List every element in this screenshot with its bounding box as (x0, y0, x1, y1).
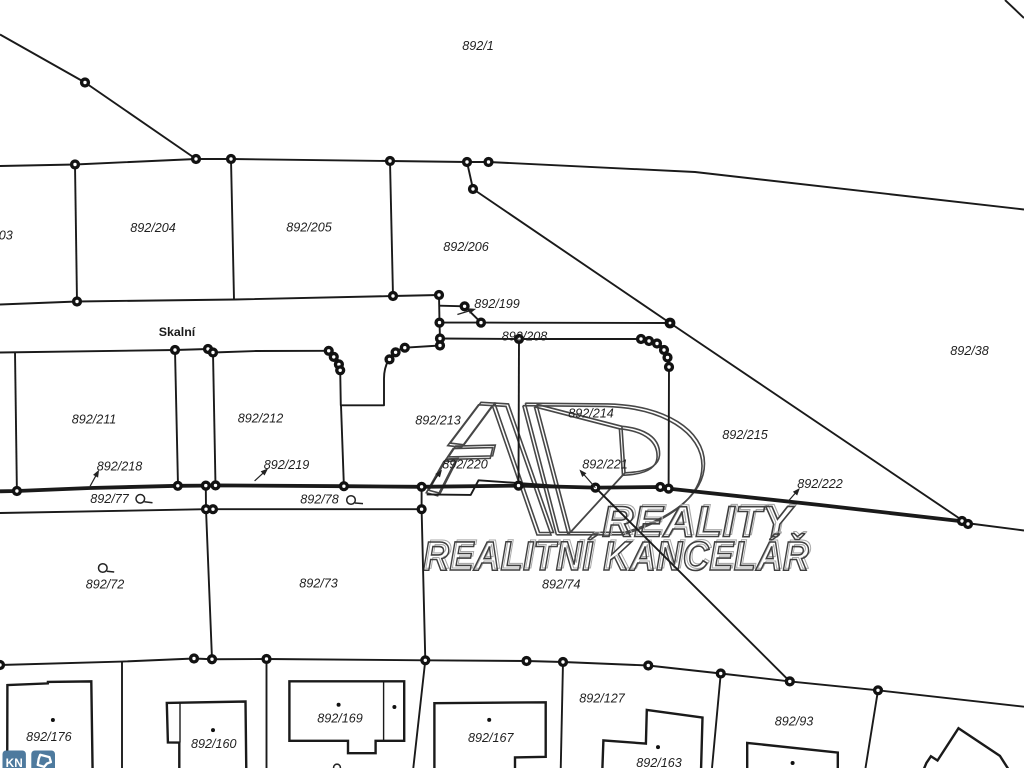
svg-text:REALITNÍ KANCELÁŘ: REALITNÍ KANCELÁŘ (423, 533, 809, 580)
svg-text:892/213: 892/213 (415, 414, 461, 428)
svg-text:892/199: 892/199 (474, 297, 520, 311)
svg-text:892/160: 892/160 (191, 737, 237, 751)
svg-text:892/204: 892/204 (130, 221, 176, 235)
svg-text:892/206: 892/206 (443, 240, 489, 254)
svg-text:892/176: 892/176 (26, 730, 72, 744)
svg-text:892/205: 892/205 (286, 221, 333, 235)
svg-text:892/1: 892/1 (462, 39, 494, 53)
svg-text:892/169: 892/169 (317, 711, 363, 725)
svg-text:892/208: 892/208 (502, 330, 548, 344)
svg-text:892/211: 892/211 (72, 413, 117, 427)
svg-text:892/212: 892/212 (238, 411, 284, 425)
svg-text:892/221: 892/221 (582, 458, 628, 472)
svg-text:Skalní: Skalní (159, 325, 196, 339)
svg-text:KN: KN (6, 756, 23, 768)
svg-text:892/163: 892/163 (636, 756, 682, 768)
svg-text:892/219: 892/219 (264, 458, 310, 472)
svg-text:892/77: 892/77 (90, 492, 130, 506)
svg-text:892/74: 892/74 (542, 578, 581, 592)
svg-text:892/167: 892/167 (468, 731, 515, 745)
svg-text:892/215: 892/215 (722, 428, 769, 442)
svg-text:892/220: 892/220 (442, 458, 488, 472)
svg-text:892/222: 892/222 (797, 477, 843, 491)
svg-text:892/73: 892/73 (299, 576, 338, 590)
svg-text:892/38: 892/38 (950, 344, 989, 358)
svg-text:892/78: 892/78 (300, 493, 339, 507)
svg-text:892/218: 892/218 (97, 460, 143, 474)
svg-text:892/214: 892/214 (568, 407, 614, 421)
svg-text:892/203: 892/203 (0, 229, 13, 243)
svg-text:892/72: 892/72 (86, 577, 125, 591)
svg-text:892/93: 892/93 (775, 715, 814, 729)
svg-text:892/127: 892/127 (579, 692, 626, 706)
